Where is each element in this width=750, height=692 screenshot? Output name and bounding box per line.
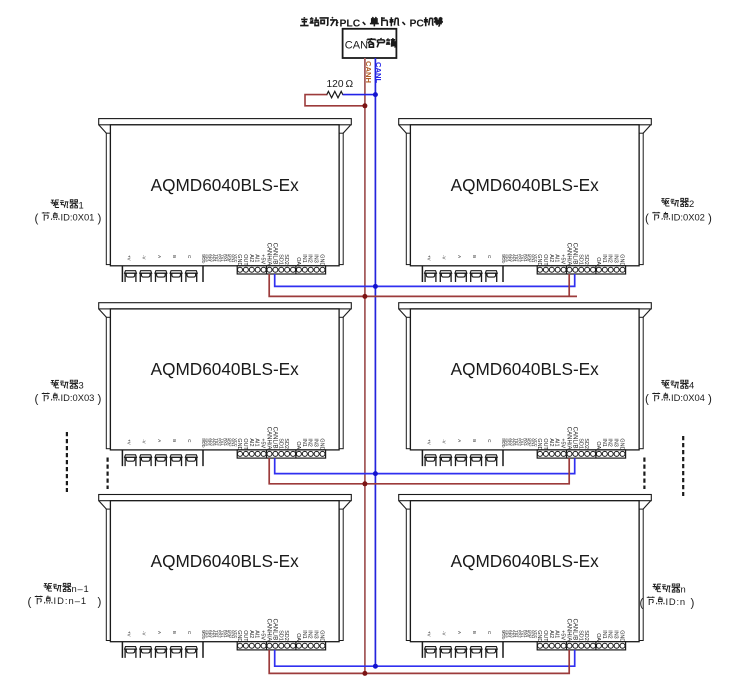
svg-text:1: 1 [79, 199, 84, 210]
svg-text:ID:0X04: ID:0X04 [671, 392, 705, 403]
svg-text:3: 3 [79, 380, 84, 391]
svg-text:n–1: n–1 [72, 583, 90, 594]
svg-text:(: ( [28, 596, 32, 609]
svg-text:ID:n: ID:n [666, 596, 686, 607]
svg-text:120 Ω: 120 Ω [327, 79, 354, 90]
svg-text:n: n [681, 584, 686, 595]
svg-text:): ) [98, 393, 102, 406]
svg-text:CANL: CANL [374, 62, 383, 83]
svg-text:2: 2 [689, 198, 694, 209]
svg-text:): ) [691, 596, 695, 609]
svg-text:ID:0X03: ID:0X03 [61, 392, 95, 403]
svg-text:): ) [98, 212, 102, 225]
svg-text:(: ( [645, 212, 649, 225]
svg-text:4: 4 [689, 380, 694, 391]
svg-text:(: ( [35, 393, 39, 406]
svg-text:ID:0X02: ID:0X02 [671, 211, 705, 222]
svg-text:(: ( [645, 393, 649, 406]
svg-text:ID:0X01: ID:0X01 [61, 212, 95, 223]
svg-text:PC: PC [410, 19, 425, 30]
svg-text:(: ( [640, 596, 644, 609]
svg-text:CANH: CANH [364, 61, 373, 83]
svg-text:): ) [708, 212, 712, 225]
svg-text:CAN: CAN [345, 39, 368, 51]
svg-text:(: ( [35, 212, 39, 225]
svg-text:): ) [708, 393, 712, 406]
svg-text:): ) [98, 596, 102, 609]
svg-text:ID:n–1: ID:n–1 [54, 595, 88, 606]
